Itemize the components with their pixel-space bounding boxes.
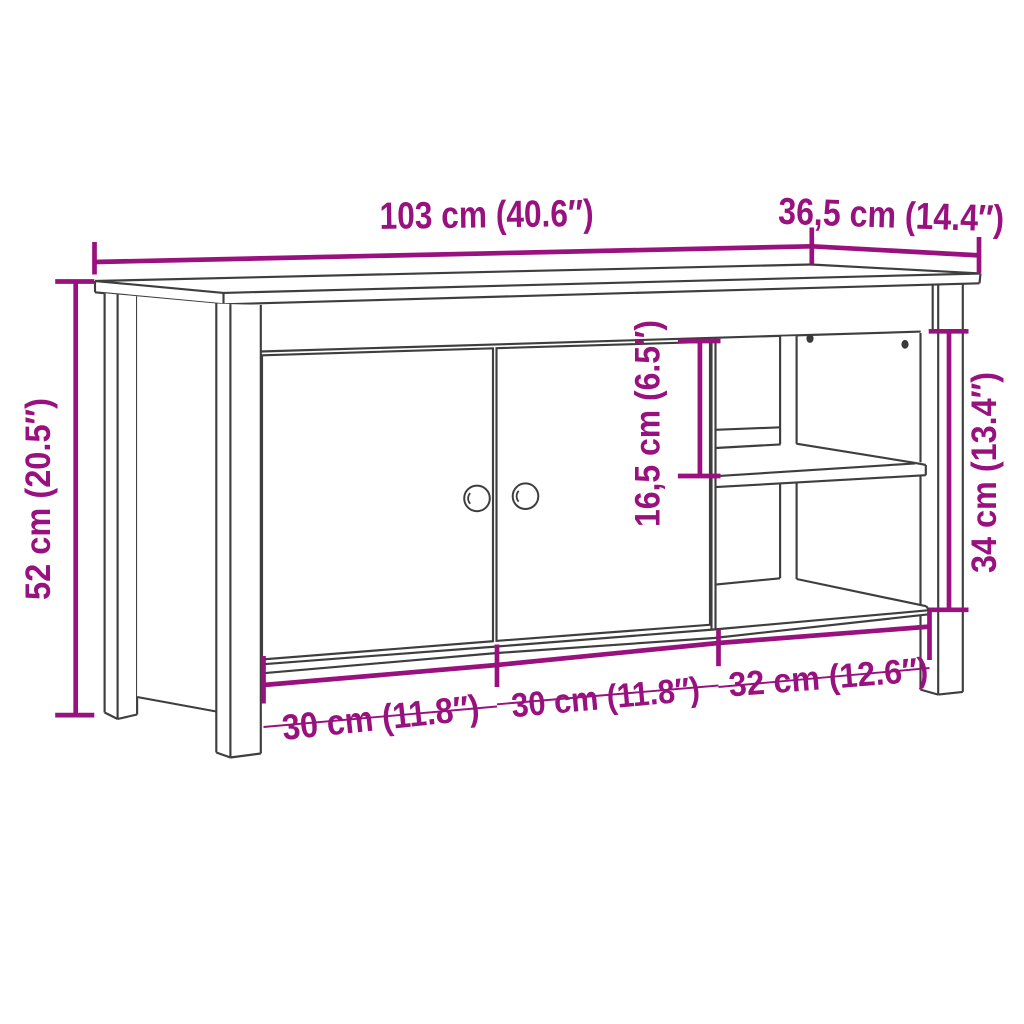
svg-text:103 cm (40.6″): 103 cm (40.6″) bbox=[379, 193, 594, 238]
svg-text:52 cm (20.5″): 52 cm (20.5″) bbox=[18, 398, 58, 600]
svg-text:34 cm (13.4″): 34 cm (13.4″) bbox=[964, 372, 1004, 573]
svg-text:16,5 cm (6.5″): 16,5 cm (6.5″) bbox=[628, 320, 668, 527]
svg-text:36,5 cm (14.4″): 36,5 cm (14.4″) bbox=[778, 190, 1005, 240]
